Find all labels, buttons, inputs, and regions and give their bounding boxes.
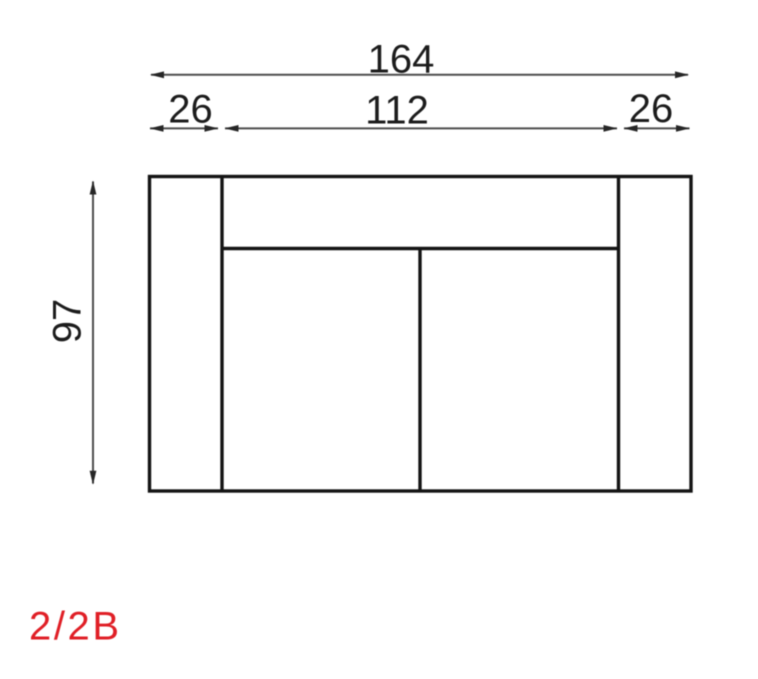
svg-text:26: 26	[168, 88, 213, 132]
svg-text:97: 97	[46, 299, 90, 344]
svg-text:164: 164	[368, 38, 435, 82]
svg-text:26: 26	[629, 87, 674, 131]
svg-text:112: 112	[365, 89, 429, 133]
svg-text:2/2B: 2/2B	[29, 605, 122, 649]
